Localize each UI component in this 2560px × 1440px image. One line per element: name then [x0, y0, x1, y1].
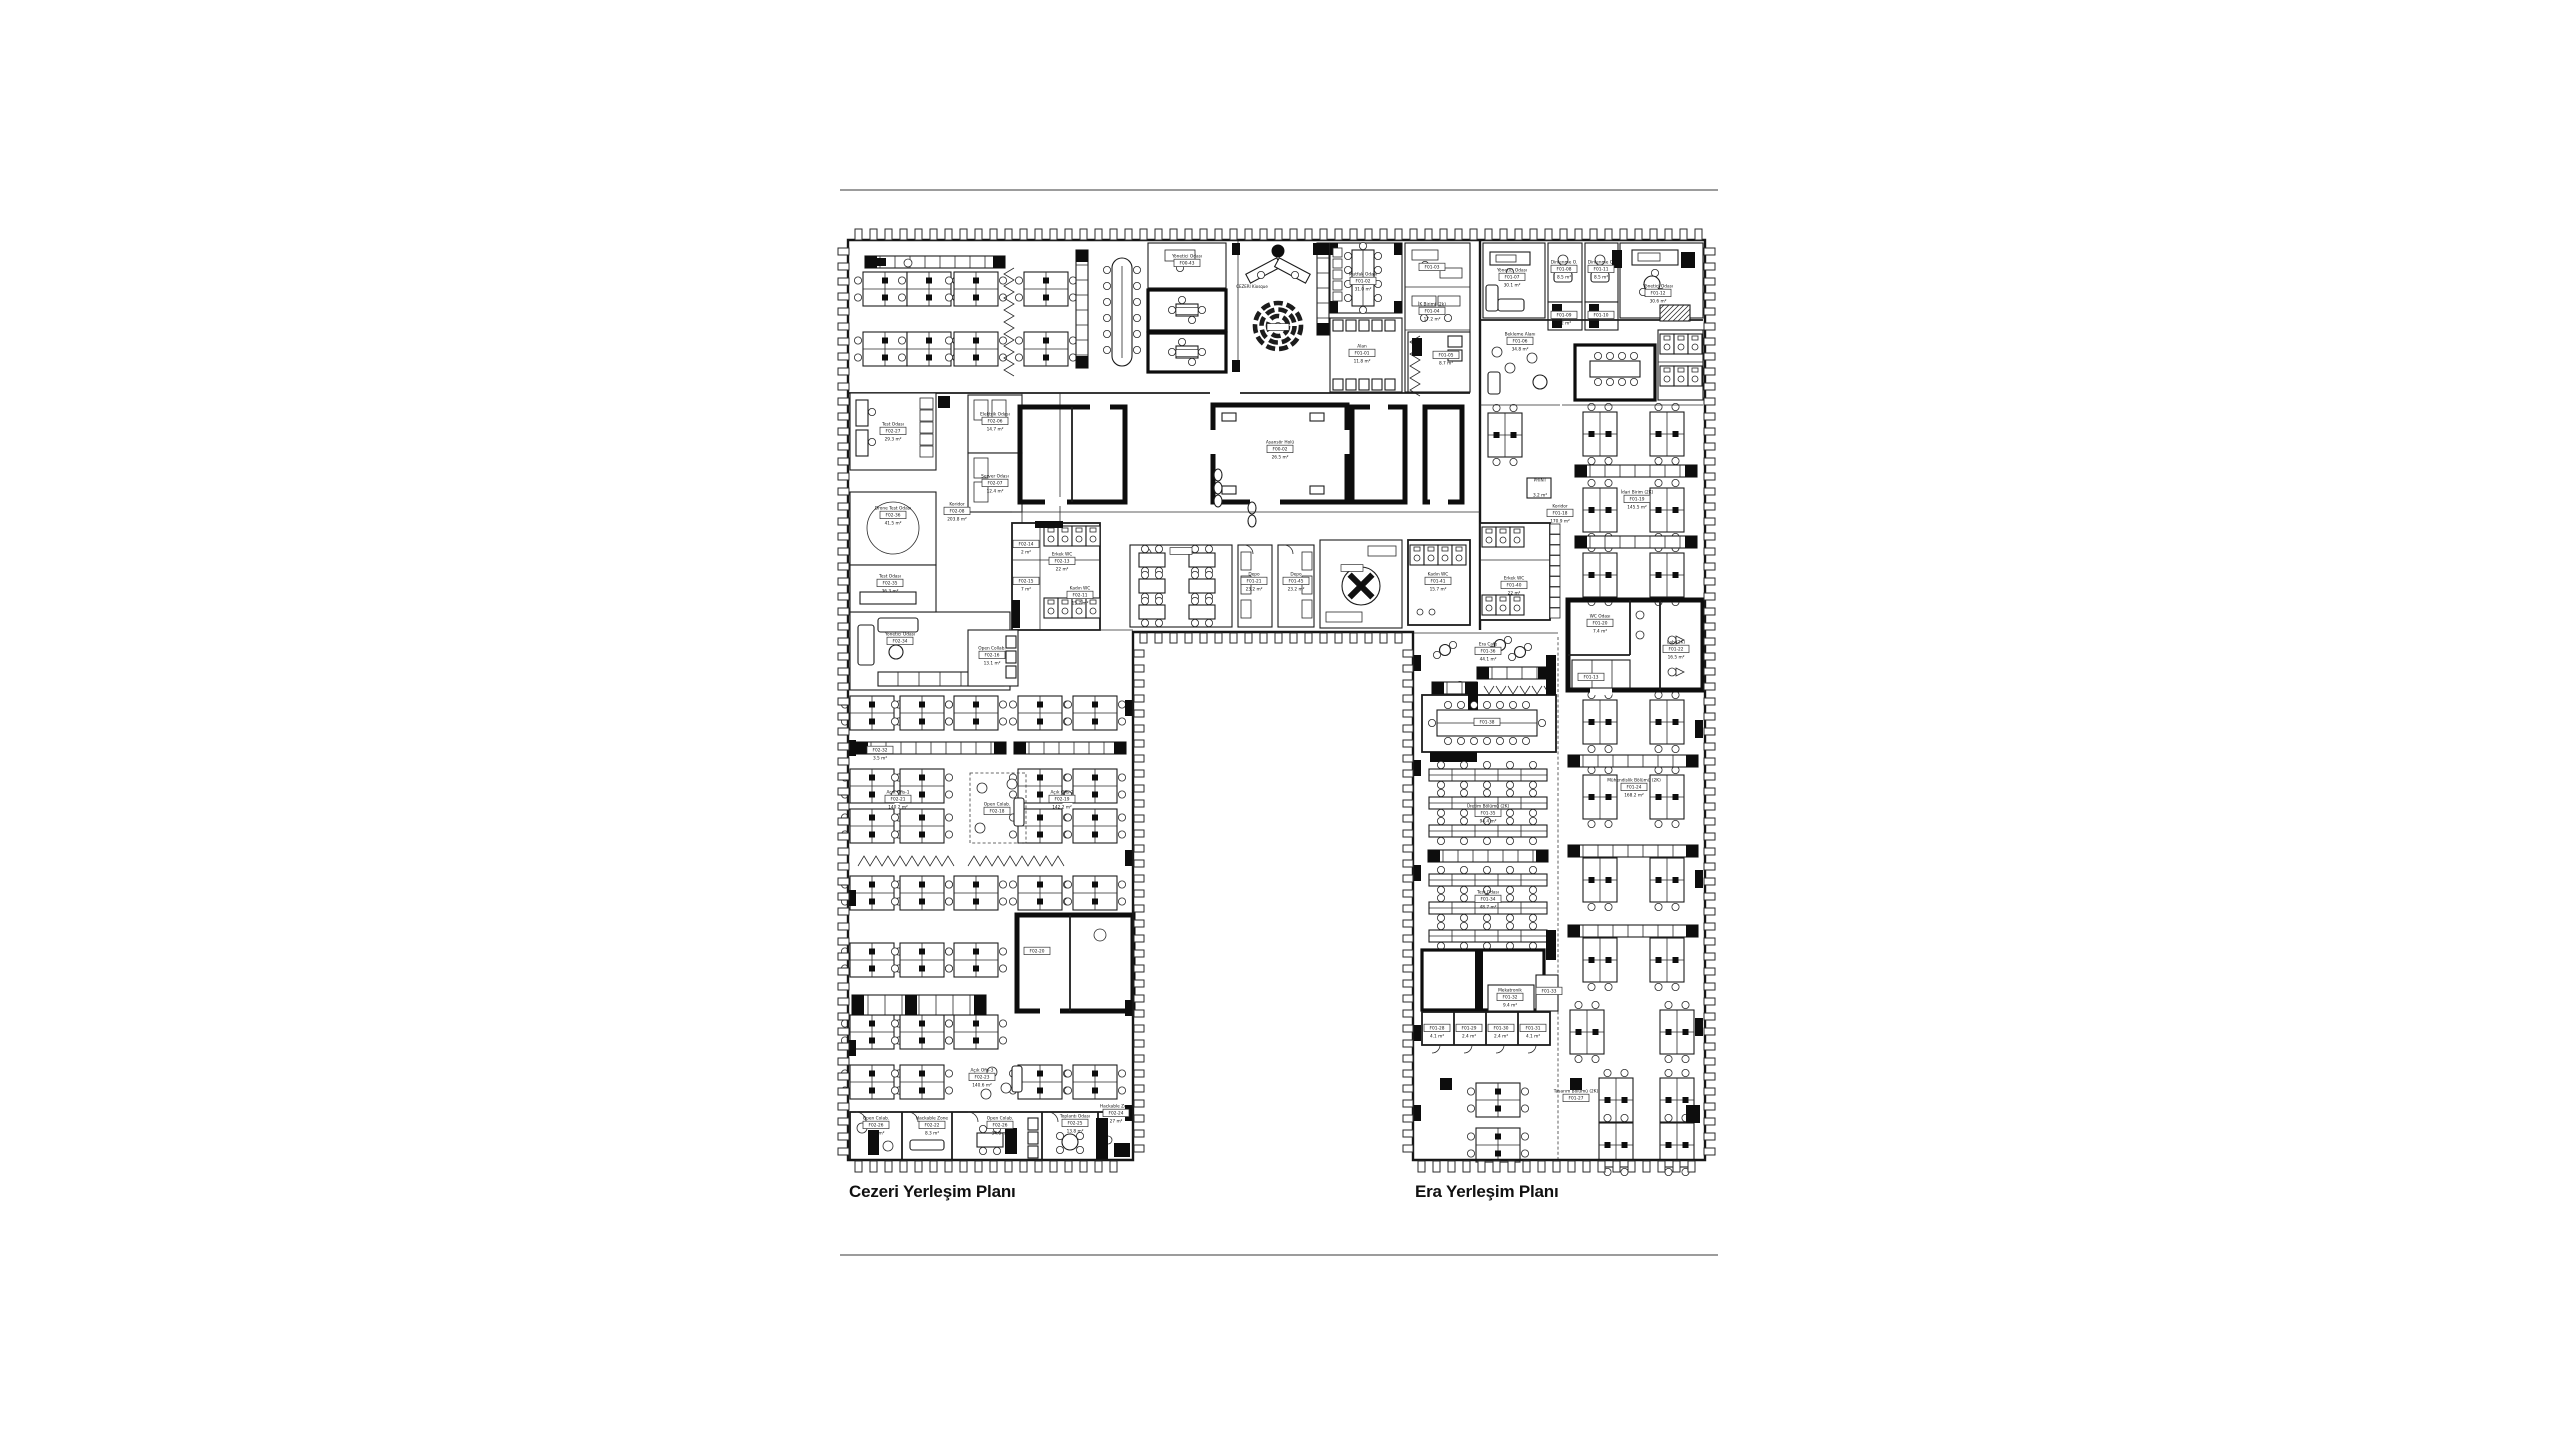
svg-text:22 m²: 22 m² [1508, 591, 1521, 597]
svg-text:Koridor: Koridor [949, 501, 965, 507]
svg-text:27 m²: 27 m² [1110, 1119, 1123, 1125]
svg-text:Depo: Depo [1290, 571, 1302, 577]
svg-text:F02-21: F02-21 [891, 797, 906, 803]
svg-text:Open Colab.: Open Colab. [863, 1115, 889, 1121]
svg-text:Açık Ofis-1: Açık Ofis-1 [887, 789, 910, 795]
svg-text:F02-18: F02-18 [990, 809, 1005, 815]
svg-text:F01-13: F01-13 [1584, 675, 1599, 681]
svg-text:Test Odası: Test Odası [878, 573, 901, 579]
svg-text:F01-29: F01-29 [1462, 1026, 1477, 1032]
svg-text:F01-19: F01-19 [1630, 497, 1645, 503]
svg-text:F02-35: F02-35 [883, 581, 898, 587]
svg-text:F01-08: F01-08 [1557, 267, 1572, 273]
svg-text:Alan: Alan [1357, 343, 1367, 349]
svg-text:F02-23: F02-23 [975, 1075, 990, 1081]
svg-text:Lab (2K): Lab (2K) [1667, 639, 1685, 645]
svg-text:Hackable Zone: Hackable Zone [1100, 1103, 1132, 1109]
svg-text:F02-32: F02-32 [873, 748, 888, 754]
svg-text:Erkek WC: Erkek WC [1052, 551, 1073, 557]
svg-text:4.1 m²: 4.1 m² [1526, 1034, 1540, 1040]
svg-text:29.3 m²: 29.3 m² [885, 437, 902, 443]
svg-text:F01-21: F01-21 [1247, 579, 1262, 585]
svg-text:F01-11: F01-11 [1594, 267, 1609, 273]
svg-text:8.5 m²: 8.5 m² [1594, 275, 1608, 281]
svg-text:PRINT: PRINT [1534, 477, 1547, 483]
svg-text:142.2 m²: 142.2 m² [1052, 805, 1072, 811]
svg-text:14.7 m²: 14.7 m² [987, 427, 1004, 433]
floor-plan: Test OdasıF02-2729.3 m²Elektrik OdasıF02… [830, 225, 1730, 1185]
svg-text:F01-31: F01-31 [1526, 1026, 1541, 1032]
svg-text:44.1 m²: 44.1 m² [1480, 657, 1497, 663]
svg-text:İK Birimi (2k): İK Birimi (2k) [1418, 300, 1446, 307]
svg-text:F02-13: F02-13 [1055, 559, 1070, 565]
divider-line-bottom [840, 1254, 1718, 1256]
svg-text:Kadın WC: Kadın WC [1428, 571, 1449, 577]
svg-text:11.8 m²: 11.8 m² [1354, 359, 1371, 365]
svg-text:F01-06: F01-06 [1513, 339, 1528, 345]
svg-text:F02-11: F02-11 [1073, 593, 1088, 599]
svg-text:Drone Test Odası: Drone Test Odası [875, 505, 911, 511]
svg-text:F01-22: F01-22 [1669, 647, 1684, 653]
svg-text:Open Collab.: Open Collab. [978, 645, 1006, 651]
svg-text:34.8 m²: 34.8 m² [1512, 347, 1529, 353]
svg-text:F01-34: F01-34 [1481, 897, 1496, 903]
svg-text:23.2 m²: 23.2 m² [1288, 587, 1305, 593]
svg-text:F02-36: F02-36 [886, 513, 901, 519]
svg-text:3.5 m²: 3.5 m² [873, 756, 887, 762]
svg-text:140.2 m²: 140.2 m² [888, 805, 908, 811]
svg-text:Test Odası: Test Odası [881, 421, 904, 427]
svg-text:203.8 m²: 203.8 m² [947, 517, 967, 523]
svg-text:F00-43: F00-43 [1180, 261, 1195, 267]
svg-text:F01-32: F01-32 [1503, 995, 1518, 1001]
svg-text:Dinlenme O.: Dinlenme O. [1551, 259, 1578, 265]
svg-text:Era Cafe: Era Cafe [1479, 641, 1498, 647]
svg-text:Yönetici Odası: Yönetici Odası [1171, 253, 1202, 259]
svg-text:F02-26: F02-26 [993, 1123, 1008, 1129]
svg-text:F02-34: F02-34 [893, 639, 908, 645]
svg-text:F02-25: F02-25 [1068, 1121, 1083, 1127]
svg-text:F01-30: F01-30 [1494, 1026, 1509, 1032]
svg-text:F01-07: F01-07 [1505, 275, 1520, 281]
svg-text:Koridor: Koridor [1552, 503, 1568, 509]
svg-text:34.8 m²: 34.8 m² [992, 1131, 1009, 1137]
svg-text:F01-10: F01-10 [1594, 313, 1609, 319]
svg-text:Open Colab.: Open Colab. [984, 801, 1010, 807]
svg-text:41.5 m²: 41.5 m² [885, 521, 902, 527]
svg-text:3.2 m²: 3.2 m² [1557, 321, 1571, 327]
svg-text:F02-22: F02-22 [925, 1123, 940, 1129]
svg-text:F01-36: F01-36 [1481, 649, 1496, 655]
svg-text:F02-16: F02-16 [985, 653, 1000, 659]
svg-text:Test Odası: Test Odası [1476, 889, 1499, 895]
caption-era-plan: Era Yerleşim Planı [1415, 1182, 1559, 1202]
svg-text:Açık Ofis-2: Açık Ofis-2 [1051, 789, 1074, 795]
svg-text:F02-27: F02-27 [886, 429, 901, 435]
svg-text:48.7 m²: 48.7 m² [1480, 905, 1497, 911]
svg-text:2 m²: 2 m² [1021, 550, 1031, 556]
svg-text:Elektrik Odası: Elektrik Odası [980, 411, 1010, 417]
svg-text:F01-20: F01-20 [1593, 621, 1608, 627]
svg-text:12.4 m²: 12.4 m² [987, 489, 1004, 495]
svg-text:8.7 m²: 8.7 m² [1439, 361, 1453, 367]
svg-text:F02-20: F02-20 [1030, 949, 1045, 955]
svg-text:Depo: Depo [1248, 571, 1260, 577]
svg-text:WC Odası: WC Odası [1590, 613, 1611, 619]
svg-text:3.2 m²: 3.2 m² [1533, 493, 1547, 499]
svg-text:7.4 m²: 7.4 m² [1593, 629, 1607, 635]
svg-text:8.5 m²: 8.5 m² [1557, 275, 1571, 281]
divider-line-top [840, 189, 1718, 191]
svg-text:9.4 m²: 9.4 m² [1503, 1003, 1517, 1009]
svg-text:12.2 m²: 12.2 m² [868, 1131, 885, 1137]
svg-text:F01-38: F01-38 [1480, 720, 1495, 726]
svg-text:140.6 m²: 140.6 m² [972, 1083, 992, 1089]
svg-text:F02-24: F02-24 [1109, 1111, 1124, 1117]
svg-text:F01-09: F01-09 [1557, 313, 1572, 319]
svg-text:F02-15: F02-15 [1019, 579, 1034, 585]
svg-text:Üretim Bölümü (2K): Üretim Bölümü (2K) [1467, 802, 1510, 809]
svg-text:Yönetici Odası: Yönetici Odası [1642, 283, 1673, 289]
svg-text:7 m²: 7 m² [1021, 587, 1031, 593]
svg-text:F01-05: F01-05 [1439, 353, 1454, 359]
floor-plan-svg: Test OdasıF02-2729.3 m²Elektrik OdasıF02… [830, 225, 1730, 1185]
svg-text:F01-01: F01-01 [1355, 351, 1370, 357]
svg-text:F02-26: F02-26 [869, 1123, 884, 1129]
svg-text:Tasarım Bölümü (2K): Tasarım Bölümü (2K) [1553, 1088, 1599, 1094]
svg-text:Bekleme Alanı: Bekleme Alanı [1505, 331, 1536, 337]
svg-text:F01-28: F01-28 [1430, 1026, 1445, 1032]
svg-text:Erkek WC: Erkek WC [1504, 575, 1525, 581]
svg-text:Toplantı Odası: Toplantı Odası [1059, 1113, 1090, 1119]
svg-text:F02-06: F02-06 [988, 419, 1003, 425]
svg-text:23.2 m²: 23.2 m² [1246, 587, 1263, 593]
sheet: Test OdasıF02-2729.3 m²Elektrik OdasıF02… [0, 0, 2560, 1440]
svg-text:22 m²: 22 m² [1056, 567, 1069, 573]
svg-text:17.2 m²: 17.2 m² [1424, 317, 1441, 323]
svg-text:Kadın WC: Kadın WC [1070, 585, 1091, 591]
svg-text:F02-14: F02-14 [1019, 542, 1034, 548]
svg-text:13.1 m²: 13.1 m² [984, 661, 1001, 667]
svg-text:170.9 m²: 170.9 m² [1550, 519, 1570, 525]
svg-text:Dinlenme O.: Dinlenme O. [1588, 259, 1615, 265]
svg-text:168.2 m²: 168.2 m² [1624, 793, 1644, 799]
svg-text:F01-40: F01-40 [1507, 583, 1522, 589]
caption-cezeri-plan: Cezeri Yerleşim Planı [849, 1182, 1016, 1202]
svg-text:F01-45: F01-45 [1289, 579, 1304, 585]
svg-text:Mekatronik: Mekatronik [1498, 987, 1522, 993]
svg-text:2.4 m²: 2.4 m² [1462, 1034, 1476, 1040]
svg-text:F01-33: F01-33 [1542, 989, 1557, 995]
svg-text:15.7 m²: 15.7 m² [1430, 587, 1447, 593]
svg-text:30.1 m²: 30.1 m² [1504, 283, 1521, 289]
svg-text:F01-18: F01-18 [1553, 511, 1568, 517]
svg-text:Asansör Holü: Asansör Holü [1266, 439, 1295, 445]
svg-text:94.4 m²: 94.4 m² [1480, 819, 1497, 825]
svg-text:F02-08: F02-08 [950, 509, 965, 515]
svg-text:36.3 m²: 36.3 m² [882, 589, 899, 595]
svg-text:Open Colab.: Open Colab. [987, 1115, 1013, 1121]
svg-text:15.7 m²: 15.7 m² [1072, 601, 1089, 607]
svg-text:2.4 m²: 2.4 m² [1494, 1034, 1508, 1040]
svg-text:İdari Birim (2K): İdari Birim (2K) [1621, 488, 1654, 495]
svg-text:F01-24: F01-24 [1627, 785, 1642, 791]
svg-text:13.8 m²: 13.8 m² [1067, 1129, 1084, 1135]
svg-text:Yönetici Odası: Yönetici Odası [884, 631, 915, 637]
svg-text:Mühendislik Bölümü (2K): Mühendislik Bölümü (2K) [1607, 777, 1661, 783]
svg-text:26.5 m²: 26.5 m² [1272, 455, 1289, 461]
svg-text:30.6 m²: 30.6 m² [1650, 299, 1667, 305]
svg-text:F02-19: F02-19 [1055, 797, 1070, 803]
svg-text:F02-07: F02-07 [988, 481, 1003, 487]
svg-text:F01-02: F01-02 [1356, 279, 1371, 285]
svg-text:F01-12: F01-12 [1651, 291, 1666, 297]
svg-text:31.0 m²: 31.0 m² [1355, 287, 1372, 293]
svg-text:Server Odası: Server Odası [981, 473, 1009, 479]
svg-text:145.5 m²: 145.5 m² [1627, 505, 1647, 511]
svg-text:F00-02: F00-02 [1273, 447, 1288, 453]
svg-text:F01-03: F01-03 [1425, 265, 1440, 271]
svg-text:CEZERI Kiosque: CEZERI Kiosque [1236, 284, 1268, 289]
svg-text:Açık Ofis-3: Açık Ofis-3 [971, 1067, 994, 1073]
svg-text:F01-04: F01-04 [1425, 309, 1440, 315]
svg-text:Yönetici Odası: Yönetici Odası [1496, 267, 1527, 273]
svg-text:16.5 m²: 16.5 m² [1668, 655, 1685, 661]
svg-text:8.3 m²: 8.3 m² [925, 1131, 939, 1137]
svg-text:Mutfak Odası: Mutfak Odası [1349, 271, 1377, 277]
svg-text:F01-41: F01-41 [1431, 579, 1446, 585]
svg-text:F01-27: F01-27 [1569, 1096, 1584, 1102]
svg-text:F01-35: F01-35 [1481, 811, 1496, 817]
svg-text:Hackable Zone: Hackable Zone [916, 1115, 948, 1121]
svg-text:4.1 m²: 4.1 m² [1430, 1034, 1444, 1040]
